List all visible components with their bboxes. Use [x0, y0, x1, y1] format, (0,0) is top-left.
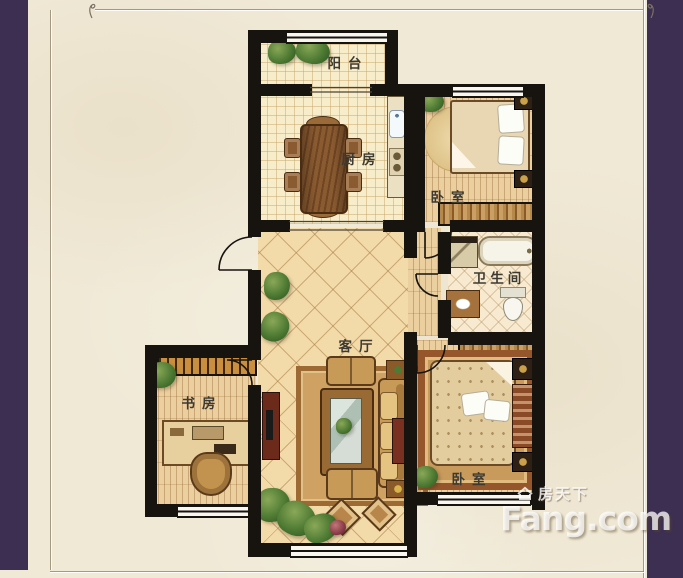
frame-line-bottom — [50, 571, 644, 572]
fang-watermark: 房天下 Fang.com — [500, 483, 678, 538]
loveseat-top — [326, 356, 376, 386]
frame-ornament-left — [86, 1, 98, 19]
frame-ornament-right — [645, 1, 657, 19]
purple-band-left — [0, 0, 28, 570]
room-label-bedroom-north: 卧室 — [431, 186, 472, 206]
bathtub — [478, 236, 538, 266]
frame-line-left — [50, 10, 51, 570]
dining-chair — [284, 138, 301, 158]
pillow — [483, 399, 511, 423]
wall — [450, 220, 545, 232]
wall — [383, 220, 425, 232]
dining-chair — [284, 172, 301, 192]
window-balcony — [286, 31, 388, 44]
blanket-fold — [452, 142, 476, 168]
wall — [248, 385, 261, 557]
desk-chair — [190, 452, 232, 496]
parchment-background: 阳台 厨房 卧室 卫生间 客厅 书房 卧室 房天下 Fang.com — [0, 0, 683, 578]
room-label-bathroom: 卫生间 — [473, 267, 526, 287]
loveseat-bottom — [326, 468, 378, 500]
window-bedroom-north — [452, 85, 524, 98]
desk-laptop — [192, 426, 224, 440]
window-study — [177, 505, 249, 518]
wall — [438, 232, 451, 274]
nightstand — [512, 358, 534, 380]
room-label-study: 书房 — [182, 392, 223, 412]
dining-table — [300, 124, 348, 214]
desk-item — [170, 428, 184, 436]
room-label-living: 客厅 — [339, 335, 380, 355]
blanket-fold — [486, 362, 512, 386]
dining-chair — [345, 172, 362, 192]
tv-screen — [266, 410, 273, 440]
wall — [248, 30, 261, 237]
entry-door-arc — [219, 237, 252, 270]
nightstand — [514, 170, 534, 188]
bathroom-sink — [446, 290, 480, 318]
kitchen-stove — [389, 148, 405, 176]
room-label-balcony: 阳台 — [328, 52, 369, 72]
watermark-site-name-en: Fang.com — [500, 499, 678, 538]
wall — [145, 345, 157, 517]
headboard-dresser — [512, 384, 534, 448]
wall — [248, 84, 312, 96]
wall — [404, 332, 417, 556]
room-label-kitchen: 厨房 — [342, 148, 383, 168]
window-living — [290, 544, 408, 558]
nightstand — [512, 452, 534, 472]
wall — [404, 232, 417, 258]
frame-line-top — [95, 9, 643, 10]
room-label-bedroom-south: 卧室 — [452, 468, 493, 488]
kitchen-sink — [389, 110, 405, 138]
wall — [145, 345, 261, 358]
wall — [448, 332, 545, 345]
wall — [532, 84, 545, 510]
pillow — [497, 135, 524, 165]
wall — [404, 84, 425, 232]
sofa-cushion — [380, 392, 398, 420]
wall — [248, 220, 290, 232]
